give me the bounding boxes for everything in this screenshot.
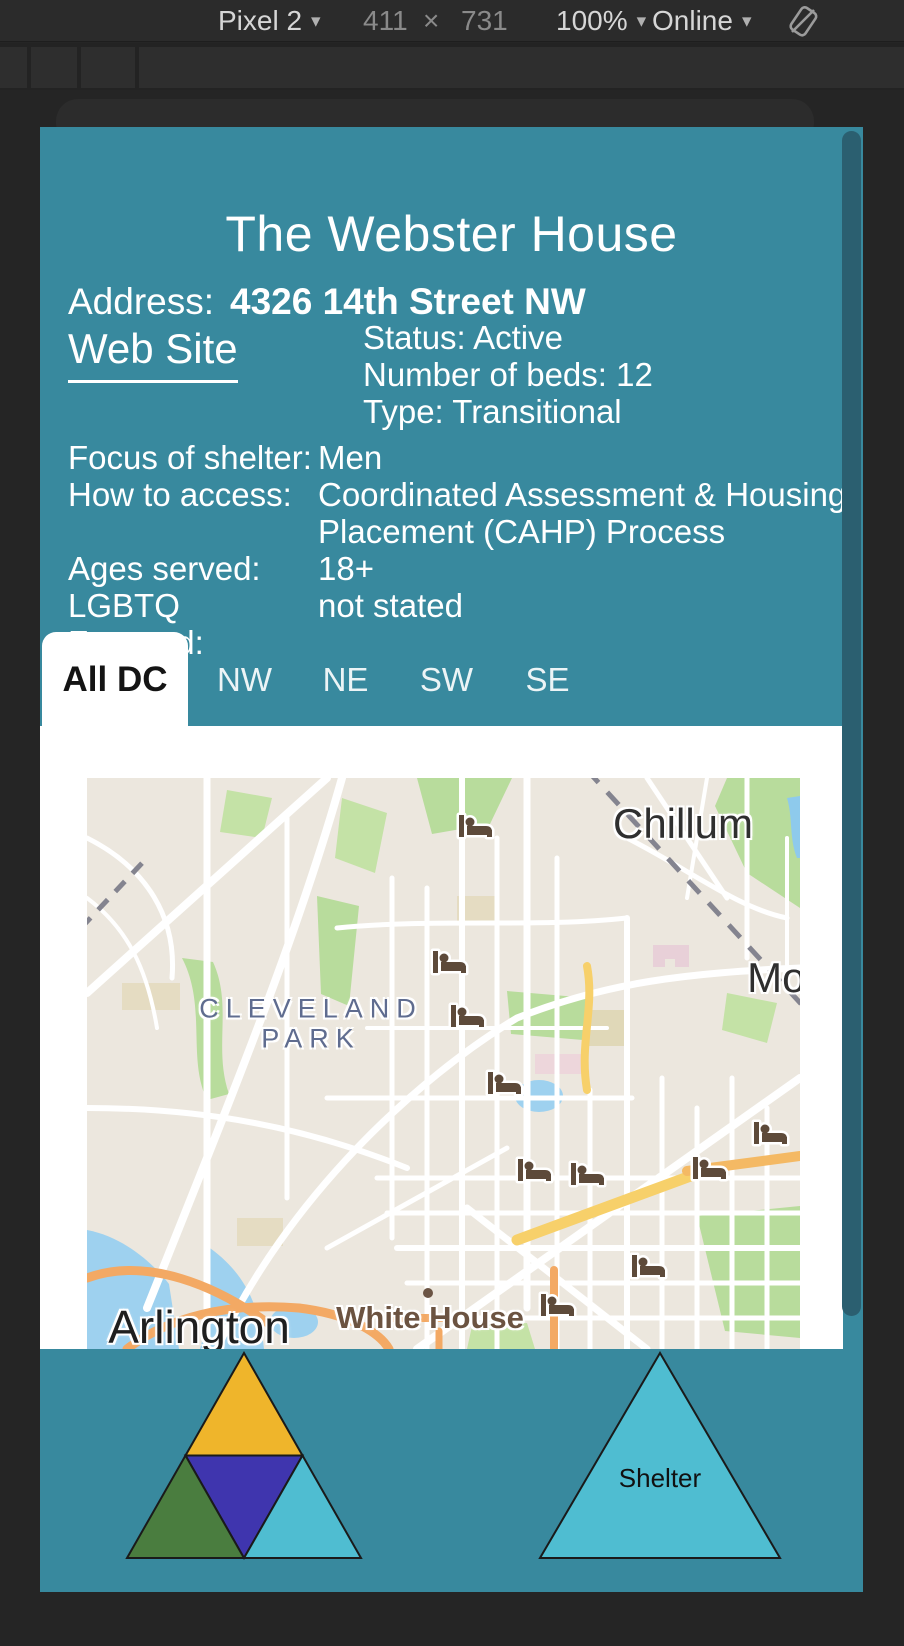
detail-label: How to access:: [68, 476, 318, 550]
zoom-select[interactable]: 100%▾: [556, 0, 646, 42]
detail-value: Coordinated Assessment & Housing Placeme…: [318, 476, 858, 550]
detail-label: Ages served:: [68, 550, 318, 587]
tab-ne[interactable]: NE: [295, 632, 396, 727]
shelter-details: Focus of shelter: Men How to access: Coo…: [68, 439, 858, 661]
white-house-dot: [423, 1288, 433, 1298]
tab-sw[interactable]: SW: [396, 632, 497, 727]
type-line: Type: Transitional: [363, 393, 653, 430]
status-line: Status: Active: [363, 319, 653, 356]
dc-shelter-map[interactable]: [87, 778, 800, 1349]
tab-all-dc[interactable]: All DC: [42, 632, 188, 727]
browser-tab-strip: [0, 43, 904, 90]
scrollbar-thumb[interactable]: [842, 131, 861, 1316]
tab-strip-segment: [31, 47, 77, 88]
detail-row-access: How to access: Coordinated Assessment & …: [68, 476, 858, 550]
page-title: The Webster House: [40, 205, 863, 263]
viewport-height-input[interactable]: 731: [461, 0, 508, 42]
map-image[interactable]: ChillumCLEVELANDPARKMouWhite HouseArling…: [87, 778, 800, 1349]
logo-top-triangle: [186, 1353, 303, 1456]
detail-label: Focus of shelter:: [68, 439, 318, 476]
dimension-times-icon: ×: [423, 0, 439, 42]
emulated-page-viewport: The Webster House Address:4326 14th Stre…: [40, 127, 863, 1592]
tab-strip-segment: [0, 47, 27, 88]
shelter-triangle: [540, 1353, 780, 1558]
tab-se[interactable]: SE: [497, 632, 598, 727]
tab-strip-segment: [139, 47, 904, 88]
detail-row-ages: Ages served: 18+: [68, 550, 858, 587]
address-value: 4326 14th Street NW: [230, 281, 586, 322]
devtools-device-toolbar: Pixel 2▾ 411 × 731 100%▾ Online▾: [0, 0, 904, 42]
website-link[interactable]: Web Site: [68, 325, 238, 383]
rotate-device-icon[interactable]: [786, 4, 820, 38]
detail-value: 18+: [318, 550, 858, 587]
address-label: Address:: [68, 281, 214, 322]
status-block: Status: Active Number of beds: 12 Type: …: [363, 319, 653, 430]
detail-value: Men: [318, 439, 858, 476]
tab-panel-all-dc: ChillumCLEVELANDPARKMouWhite HouseArling…: [40, 726, 843, 1349]
network-throttle-select[interactable]: Online▾: [652, 0, 751, 42]
chevron-down-icon: ▾: [311, 1, 321, 43]
shelter-triangle-logo: Shelter: [537, 1350, 783, 1562]
viewport-width-input[interactable]: 411: [363, 0, 408, 42]
triforce-logo: [124, 1350, 364, 1562]
beds-line: Number of beds: 12: [363, 356, 653, 393]
shelter-label: Shelter: [619, 1463, 702, 1493]
device-select[interactable]: Pixel 2▾: [218, 0, 321, 42]
page-footer: Shelter: [40, 1349, 863, 1592]
detail-row-focus: Focus of shelter: Men: [68, 439, 858, 476]
chevron-down-icon: ▾: [637, 1, 647, 43]
address-row: Address:4326 14th Street NW: [68, 281, 586, 323]
tab-strip-segment: [81, 47, 135, 88]
tab-nw[interactable]: NW: [194, 632, 295, 727]
chevron-down-icon: ▾: [742, 1, 752, 43]
